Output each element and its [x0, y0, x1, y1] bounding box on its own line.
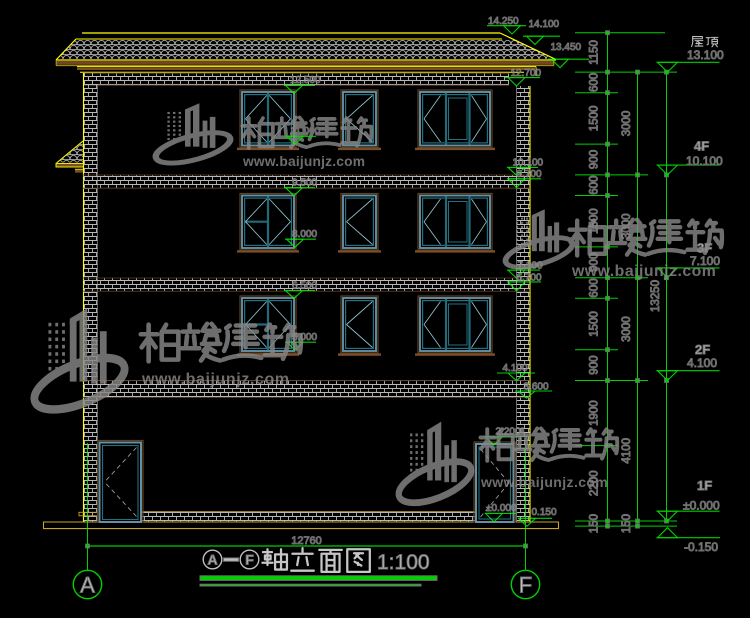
- svg-text:600: 600: [589, 176, 601, 195]
- svg-text:12.500: 12.500: [290, 75, 321, 86]
- svg-text:12.700: 12.700: [511, 68, 542, 79]
- svg-text:A: A: [80, 573, 95, 598]
- svg-text:www.baijunjz.com: www.baijunjz.com: [571, 263, 716, 280]
- svg-text:www.baijunjz.com: www.baijunjz.com: [480, 474, 608, 490]
- svg-text:10.100: 10.100: [686, 154, 723, 168]
- svg-text:4F: 4F: [694, 139, 709, 154]
- svg-text:4.100: 4.100: [503, 363, 528, 374]
- svg-text:150: 150: [621, 514, 633, 533]
- svg-text:1F: 1F: [697, 478, 712, 493]
- svg-text:3.600: 3.600: [524, 382, 549, 393]
- svg-text:F: F: [245, 552, 254, 568]
- svg-text:600: 600: [589, 73, 601, 92]
- svg-text:9.700: 9.700: [517, 169, 542, 180]
- svg-text:14.250: 14.250: [488, 16, 519, 27]
- svg-text:600: 600: [589, 278, 601, 297]
- svg-text:0.150: 0.150: [532, 507, 557, 518]
- svg-text:3000: 3000: [621, 316, 633, 342]
- svg-text:150: 150: [589, 514, 601, 533]
- svg-text:9.500: 9.500: [292, 178, 317, 189]
- svg-text:1:100: 1:100: [377, 551, 430, 574]
- svg-text:11.000: 11.000: [291, 126, 321, 137]
- svg-text:6.500: 6.500: [292, 281, 317, 292]
- svg-text:13.100: 13.100: [687, 48, 724, 62]
- svg-text:4.100: 4.100: [687, 356, 717, 370]
- svg-text:13.450: 13.450: [551, 42, 582, 53]
- svg-text:1900: 1900: [589, 400, 601, 426]
- svg-text:14.100: 14.100: [529, 19, 560, 30]
- svg-text:8.000: 8.000: [292, 229, 317, 240]
- svg-text:12760: 12760: [291, 535, 322, 547]
- svg-text:±0.000: ±0.000: [683, 499, 720, 513]
- svg-text:±0.000: ±0.000: [486, 503, 517, 514]
- svg-text:2F: 2F: [695, 342, 710, 357]
- svg-text:1150: 1150: [589, 40, 601, 65]
- svg-text:900: 900: [589, 150, 601, 169]
- svg-text:A: A: [207, 552, 217, 568]
- svg-text:www.baijunjz.com: www.baijunjz.com: [242, 154, 365, 169]
- svg-text:13250: 13250: [650, 280, 662, 312]
- svg-text:3000: 3000: [621, 111, 633, 137]
- svg-text:900: 900: [589, 356, 601, 375]
- svg-text:1500: 1500: [589, 311, 601, 337]
- svg-text:F: F: [519, 573, 532, 598]
- svg-text:1500: 1500: [589, 106, 601, 132]
- svg-text:6.700: 6.700: [517, 273, 542, 284]
- svg-text:-0.150: -0.150: [684, 540, 718, 554]
- svg-text:4100: 4100: [621, 438, 633, 464]
- svg-text:10.100: 10.100: [513, 158, 544, 169]
- svg-text:www.baijunjz.com: www.baijunjz.com: [141, 371, 290, 388]
